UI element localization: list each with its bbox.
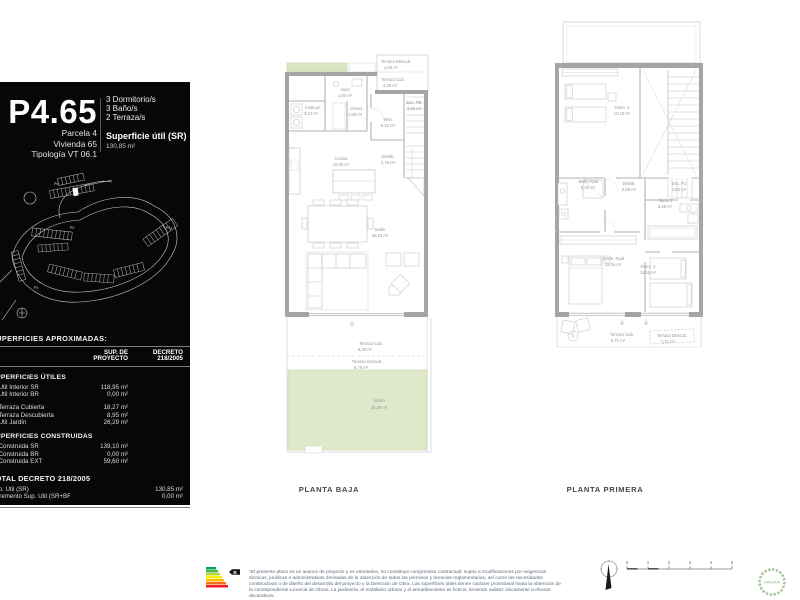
room-area: 10,16 m² bbox=[614, 111, 631, 116]
room-area: 6,22 m² bbox=[381, 123, 396, 128]
room-label: Esc. PB bbox=[407, 100, 422, 105]
sliding-door bbox=[309, 313, 404, 315]
planter-green bbox=[287, 63, 347, 72]
room-area: 5,06 m² bbox=[581, 185, 596, 190]
stairs bbox=[668, 70, 699, 198]
room-label: Vest. bbox=[383, 117, 392, 122]
feature-terrazas: 2 Terraza/s bbox=[106, 114, 187, 123]
room-area: 3,26 m² bbox=[383, 83, 398, 88]
room-area: 1,21 m² bbox=[661, 339, 676, 344]
breeam-label: BREEAM bbox=[764, 581, 780, 585]
table-column-headers: SUP. DE PROYECTO DECRETO 218/2005 bbox=[0, 350, 190, 364]
scale-tick-5: 5 bbox=[731, 560, 734, 565]
room-area: 3,00 m² bbox=[407, 106, 422, 111]
garden-step bbox=[305, 446, 322, 453]
siteplan-label-p2: P2 bbox=[70, 226, 74, 230]
dorm3-furniture bbox=[650, 258, 692, 307]
table-row: S. Terraza Descubierta8,95 m² bbox=[0, 412, 190, 419]
breeam-logo: BREEAM bbox=[753, 562, 791, 600]
dorm2-furniture bbox=[562, 69, 618, 122]
unit-features: 3 Dormitorio/s 3 Baño/s 2 Terraza/s Supe… bbox=[106, 96, 187, 150]
room-label: Dorm. 2 bbox=[615, 105, 631, 110]
floorplan-planta-baja: Terraza Descub. 1,49 m² Terraza Cub. 3,2… bbox=[283, 50, 433, 460]
room-area: 1,62 m² bbox=[672, 187, 687, 192]
siteplan-label-p4: P4 bbox=[54, 182, 58, 186]
room-area: 9,71 m² bbox=[611, 338, 626, 343]
scale-tick-3: 3 bbox=[689, 560, 692, 565]
scale-tick-2: 2 bbox=[668, 560, 671, 565]
siteplan-roads bbox=[0, 180, 177, 320]
superficie-util-label: Superficie útil (SR) bbox=[106, 131, 187, 141]
room-area: 5,76 m² bbox=[354, 365, 369, 370]
room-label: Dorm. Ppal. bbox=[603, 256, 625, 261]
section-construidas: SUPERFICIES CONSTRUIDAS bbox=[0, 433, 190, 440]
room-label: Closet bbox=[350, 106, 363, 111]
superficie-util-value: 130,85 m² bbox=[106, 143, 187, 150]
room-label: Cocina bbox=[334, 156, 348, 161]
door-arcs bbox=[604, 178, 618, 232]
energy-rating-icon: B bbox=[204, 566, 244, 592]
room-label: Salón bbox=[375, 227, 386, 232]
room-label: Distrib. bbox=[381, 154, 394, 159]
north-arrow-icon bbox=[598, 558, 624, 594]
table-row: S. Útil Interior SR118,95 m² bbox=[0, 384, 190, 391]
plan-sheet: P4.65 Parcela 4 Vivienda 65 Tipología VT… bbox=[0, 0, 800, 600]
terrace-furniture bbox=[561, 318, 590, 341]
siteplan-map: P4 P2 P11 P3 bbox=[0, 162, 190, 334]
kitchen-island bbox=[333, 170, 375, 200]
room-area: 1,49 m² bbox=[384, 65, 399, 70]
floorplan-planta-primera: Dorm. 2 10,16 m² Baño Ppal. 5,06 m² Dist… bbox=[553, 20, 705, 352]
table-row: S. Terraza Cubierta18,27 m² bbox=[0, 404, 190, 411]
unit-identity: P4.65 Parcela 4 Vivienda 65 Tipología VT… bbox=[0, 95, 97, 160]
room-label: Distrib. bbox=[622, 181, 635, 186]
room-area: 15,06 m² bbox=[605, 262, 622, 267]
unit-code: P4.65 bbox=[0, 95, 97, 128]
scale-tick-0: 0 bbox=[626, 560, 629, 565]
room-label: Dorm. 3 bbox=[641, 264, 657, 269]
scale-tick-4: 4 bbox=[710, 560, 713, 565]
planta-primera-title: PLANTA PRIMERA bbox=[566, 485, 644, 494]
kitchen-counter bbox=[289, 148, 300, 194]
room-label: Aseo bbox=[340, 87, 350, 92]
section-utiles: SUPERFICIES ÚTILES bbox=[0, 374, 190, 381]
col-sup-proyecto: SUP. DE PROYECTO bbox=[70, 350, 128, 364]
room-label: Baño Ppal. bbox=[579, 179, 600, 184]
room-area: 2,76 m² bbox=[381, 160, 396, 165]
header-divider bbox=[100, 98, 101, 152]
room-area: 3,46 m² bbox=[658, 204, 673, 209]
parcela-label: Parcela 4 bbox=[0, 129, 97, 139]
room-area: 10,06 m² bbox=[333, 162, 350, 167]
garden-area bbox=[288, 370, 427, 450]
scale-tick-1: 1 bbox=[647, 560, 650, 565]
planter-white bbox=[349, 63, 375, 72]
dining-table bbox=[302, 200, 373, 248]
vivienda-label: Vivienda 65 bbox=[0, 140, 97, 150]
roof-parapet bbox=[563, 22, 700, 63]
table-rule-header bbox=[0, 366, 190, 367]
tipologia-label: Tipología VT 06.1 bbox=[0, 150, 97, 160]
table-row: Sup. Útil (SR)130,85 m² bbox=[0, 486, 190, 493]
panel-header: P4.65 Parcela 4 Vivienda 65 Tipología VT… bbox=[0, 95, 190, 167]
section-total-decreto: TOTAL DECRETO 218/2005 bbox=[0, 474, 190, 483]
table-rule-bottom bbox=[0, 507, 190, 508]
armchairs bbox=[386, 253, 419, 295]
surfaces-table: SUPERFICIES APROXIMADAS: SUP. DE PROYECT… bbox=[0, 334, 190, 511]
table-rule-top bbox=[0, 346, 190, 347]
stairs bbox=[406, 97, 424, 196]
master-bedroom-furniture bbox=[560, 236, 636, 304]
room-label: Terraza Cub. bbox=[381, 77, 405, 82]
void-cross bbox=[643, 70, 696, 175]
room-label: Jardín bbox=[373, 398, 385, 403]
table-row: S. Construida SR139,10 m² bbox=[0, 443, 190, 450]
table-row: Incremento Sup. Útil (SR+BR)0,00 m² bbox=[0, 493, 190, 500]
room-area: 1,69 m² bbox=[348, 112, 363, 117]
scale-bar: 0 1 2 3 4 5 bbox=[622, 558, 738, 574]
room-label: Terraza Cub. bbox=[359, 341, 383, 346]
room-area: 3,24 m² bbox=[304, 111, 319, 116]
laundry-appliances bbox=[291, 104, 302, 128]
siteplan-label-p3: P3 bbox=[34, 286, 38, 290]
room-area: 11,55 m² bbox=[640, 270, 657, 275]
room-area: 26,29 m² bbox=[371, 405, 388, 410]
room-area: 1,94 m² bbox=[338, 93, 353, 98]
table-row: S. Construida EXT59,60 m² bbox=[0, 458, 190, 465]
sofa bbox=[308, 254, 366, 308]
legal-disclaimer: *El presente plano es un avance de proye… bbox=[249, 570, 563, 600]
closet-shelf bbox=[333, 103, 345, 129]
terrace-arrows bbox=[620, 319, 648, 325]
siteplan-label-p11: P11 bbox=[166, 226, 172, 230]
room-label: Terraza Descub. bbox=[657, 333, 688, 338]
bath2-fixtures bbox=[648, 204, 698, 239]
planta-baja-title: PLANTA BAJA bbox=[297, 485, 361, 494]
room-label: Baño 2 bbox=[659, 198, 673, 203]
surfaces-table-title: SUPERFICIES APROXIMADAS: bbox=[0, 334, 190, 343]
table-row: S. Construida BR0,00 m² bbox=[0, 451, 190, 458]
entry-arrow bbox=[350, 320, 354, 326]
info-panel: P4.65 Parcela 4 Vivienda 65 Tipología VT… bbox=[0, 82, 190, 505]
room-label: Terraza Cub. bbox=[610, 332, 634, 337]
col-decreto: DECRETO 218/2005 bbox=[128, 350, 190, 364]
room-area: 2,96 m² bbox=[622, 187, 637, 192]
room-label: Inst/Lav. bbox=[305, 105, 321, 110]
room-label: Terraza Descub. bbox=[352, 359, 383, 364]
table-row: S. Útil Interior BR0,00 m² bbox=[0, 391, 190, 398]
room-label: Terraza Descub. bbox=[381, 59, 412, 64]
room-area: 8,30 m² bbox=[358, 347, 373, 352]
aseo-fixtures bbox=[334, 79, 363, 87]
room-label: Esc. P1 bbox=[672, 181, 687, 186]
table-row: S. Útil Jardín26,29 m² bbox=[0, 419, 190, 426]
room-area: 29,23 m² bbox=[372, 233, 389, 238]
